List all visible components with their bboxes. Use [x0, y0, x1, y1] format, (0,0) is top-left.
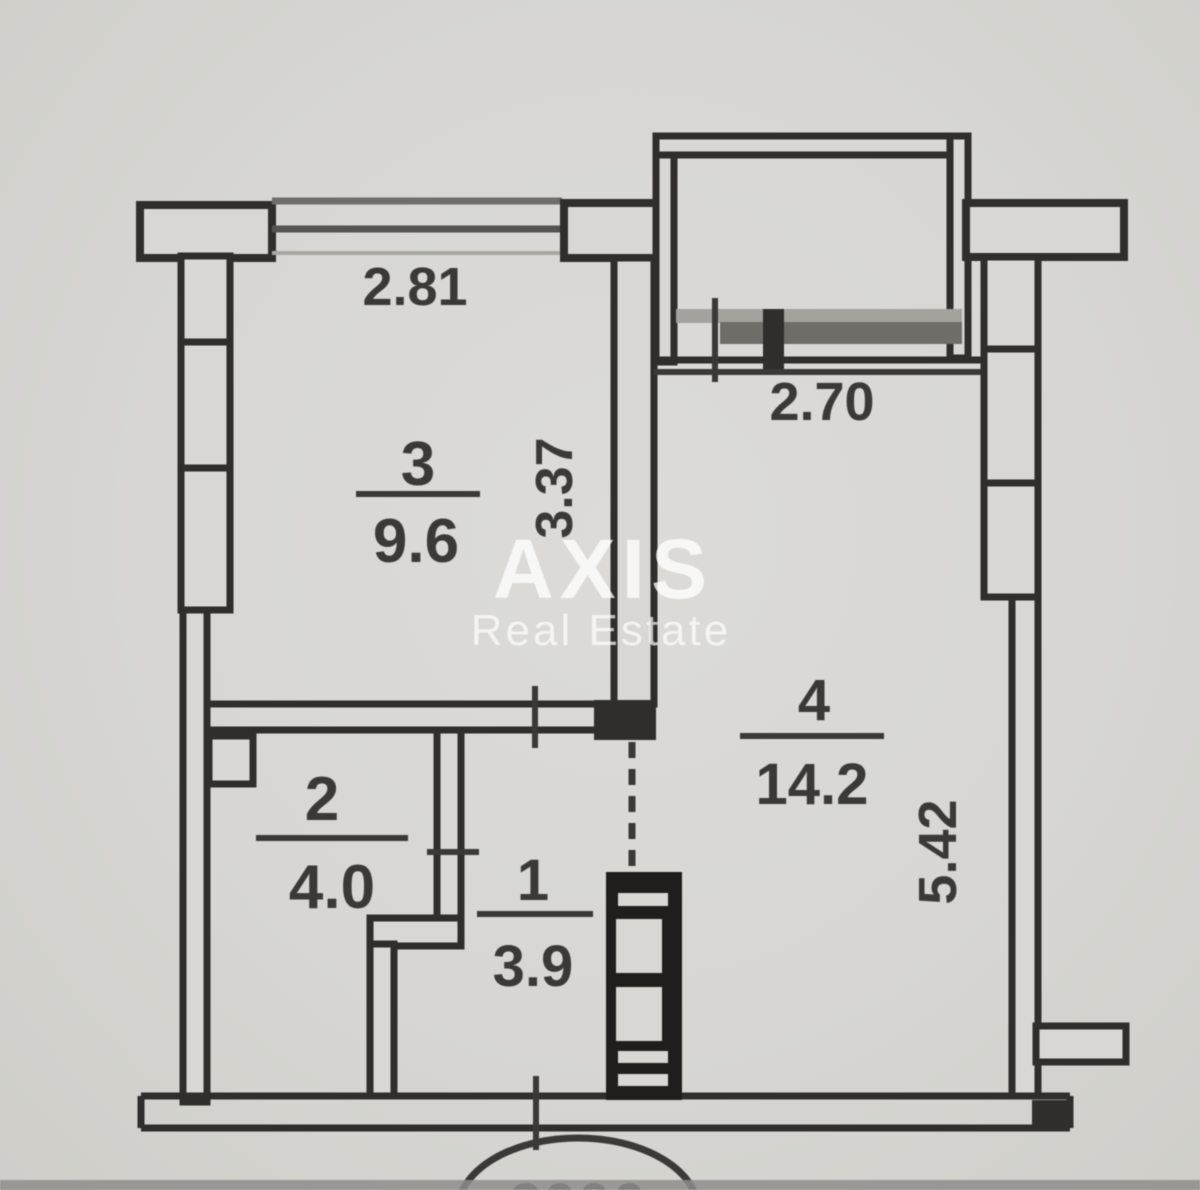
photo-edge-shadow	[0, 1180, 1200, 1190]
balcony-left-wall	[656, 136, 674, 362]
vent-shaft-slot-3	[616, 987, 662, 1041]
pier-bottom-right	[1036, 1026, 1126, 1062]
right-window-wall	[984, 257, 1038, 597]
room3-area: 9.6	[373, 507, 459, 576]
pier-top-left	[140, 205, 272, 258]
bottom-right-stub	[1032, 1100, 1072, 1126]
pier-top-right	[966, 203, 1124, 257]
room2-number: 2	[305, 765, 339, 834]
dim-room4-height: 5.42	[908, 799, 968, 904]
vent-shaft-slot-2	[616, 919, 662, 973]
dim-room4-width: 2.70	[769, 372, 874, 432]
room4-area: 14.2	[756, 752, 869, 817]
vent-shaft-slot-4	[618, 1051, 668, 1063]
watermark-tagline: Real Estate	[471, 606, 731, 655]
vent-shaft	[606, 872, 682, 1100]
balcony-top-wall	[656, 136, 968, 155]
room4-number: 4	[798, 668, 830, 733]
balcony-window-sill-light	[676, 309, 962, 323]
room2-right-wall-upper	[437, 730, 461, 922]
balcony-window-sill-dark	[720, 322, 962, 344]
watermark-brand: AXIS	[493, 522, 713, 616]
room2-right-wall-lower	[370, 944, 394, 1096]
right-wall-lower	[1012, 597, 1038, 1096]
room1-number: 1	[517, 848, 549, 913]
vent-shaft-slot-5	[618, 1074, 668, 1086]
floor-plan-drawing: 2.81 3.37 2.70 5.42 3 9.6 2 4.0 1 3.9 4 …	[0, 0, 1200, 1190]
pier-room2-top-left	[209, 736, 253, 784]
left-wall-lower	[183, 610, 207, 1102]
room1-area: 3.9	[493, 934, 574, 999]
dim-room3-width: 2.81	[362, 257, 467, 317]
floor-plan-photo: 2.81 3.37 2.70 5.42 3 9.6 2 4.0 1 3.9 4 …	[0, 0, 1200, 1190]
room2-area: 4.0	[289, 853, 375, 922]
room3-number: 3	[401, 430, 435, 499]
left-window-wall	[181, 256, 230, 610]
vent-shaft-slot-1	[618, 893, 668, 906]
pier-room3-top-right	[564, 203, 660, 258]
